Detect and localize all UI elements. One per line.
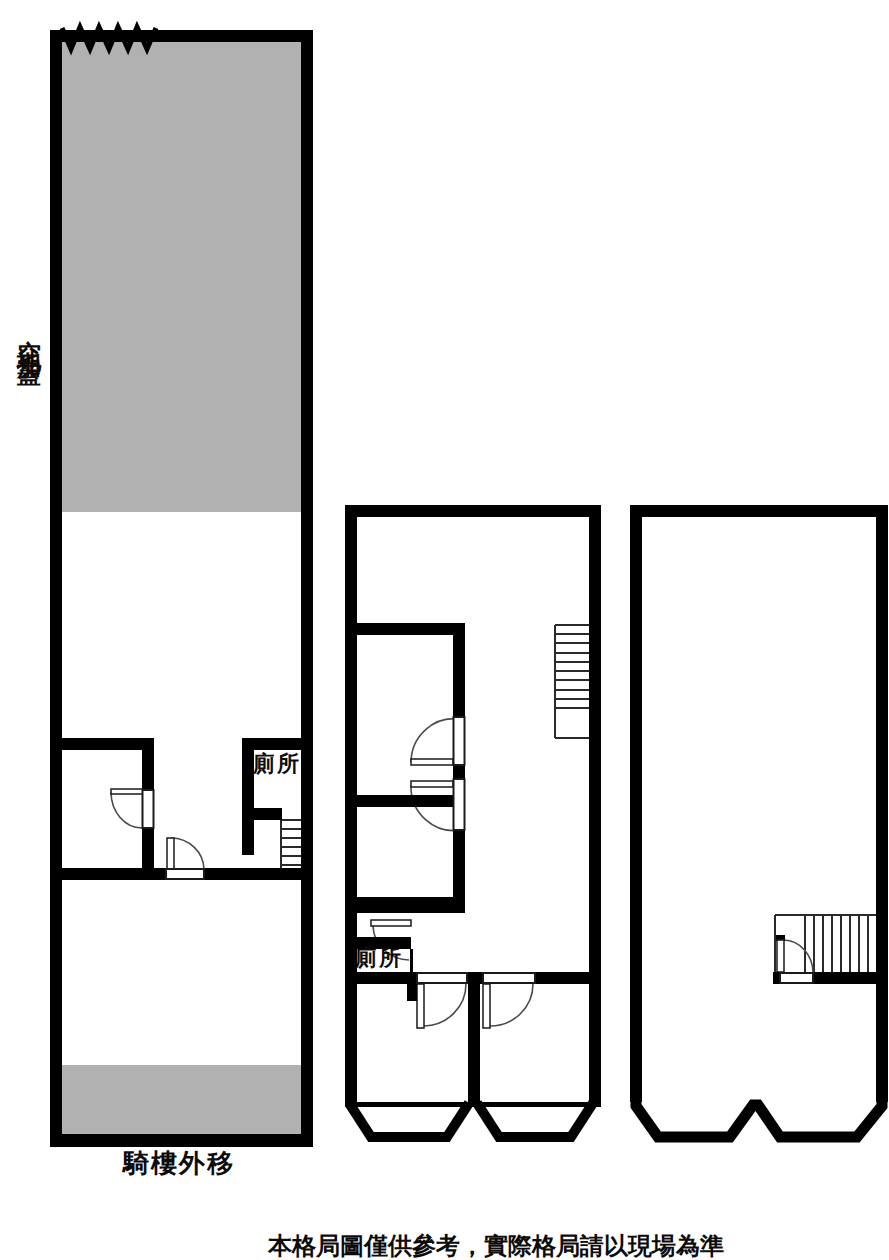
door-leaf — [417, 984, 424, 1028]
left-building-doors — [111, 789, 204, 870]
wall — [407, 984, 417, 1001]
wall — [345, 897, 465, 913]
door-gap — [417, 973, 467, 983]
door-gap — [166, 869, 204, 879]
door-arc — [111, 792, 142, 828]
wall-right — [876, 505, 888, 1102]
arcade-bay — [349, 1103, 469, 1137]
shaded-area-bottom — [62, 1065, 301, 1134]
door-leaf — [411, 759, 453, 765]
right-building-walls — [630, 505, 888, 1102]
vacant-land-addition-label: 空地加蓋 — [13, 321, 45, 349]
toilet-label-left-building: 廁所 — [253, 749, 301, 779]
floorplan-page: { "colors": { "wall": "#000000", "shaded… — [0, 0, 889, 1260]
wall-top — [630, 505, 888, 517]
right-building-stairs — [775, 915, 876, 972]
wall-right — [301, 30, 313, 1146]
wall — [242, 808, 282, 820]
door-arc — [490, 984, 533, 1026]
wall — [453, 623, 465, 913]
middle-building-stairs — [555, 625, 589, 738]
wall-right — [589, 505, 601, 1106]
door-leaf — [371, 920, 411, 926]
door-arc — [784, 940, 813, 972]
toilet-label-middle-building: 廁所 — [355, 943, 403, 973]
wall — [468, 972, 480, 1106]
right-building-doors — [776, 935, 813, 972]
door-gap — [780, 973, 813, 983]
left-building — [50, 27, 313, 1147]
middle-building-door-gaps — [417, 717, 535, 983]
arcade-extension-label: 騎樓外移 — [123, 1146, 235, 1181]
middle-building — [345, 505, 601, 1137]
wall-top — [345, 505, 601, 517]
door-leaf — [411, 781, 453, 787]
door-leaf — [167, 838, 174, 869]
door-arc — [171, 838, 204, 870]
door-arc — [424, 984, 466, 1026]
wall-left — [345, 505, 357, 1106]
door-gap — [454, 717, 465, 765]
door-gap — [143, 790, 154, 828]
door-leaf — [483, 984, 490, 1028]
floorplan-svg — [0, 0, 889, 1260]
wall-left — [630, 505, 642, 1102]
shaded-area-top — [62, 42, 301, 512]
arcade-outline — [636, 1096, 882, 1137]
arcade-bay — [477, 1103, 593, 1137]
door-gap — [483, 973, 535, 983]
wall — [345, 795, 453, 807]
door-gap — [454, 779, 465, 830]
right-building — [630, 505, 888, 1137]
left-building-stairs — [281, 820, 301, 868]
door-leaf — [777, 940, 784, 972]
wall — [357, 623, 465, 635]
disclaimer-text: 本格局圖僅供參考，實際格局請以現場為準 — [268, 1230, 724, 1260]
wall-left — [50, 30, 62, 1146]
middle-building-interior-walls — [345, 623, 601, 1106]
door-arc — [411, 719, 459, 762]
wall — [62, 738, 153, 750]
door-leaf — [111, 789, 143, 794]
wall-top — [50, 30, 313, 42]
middle-building-arcade-bays — [349, 1103, 593, 1137]
wall-thin — [410, 949, 413, 973]
storefront-line — [345, 1102, 601, 1107]
